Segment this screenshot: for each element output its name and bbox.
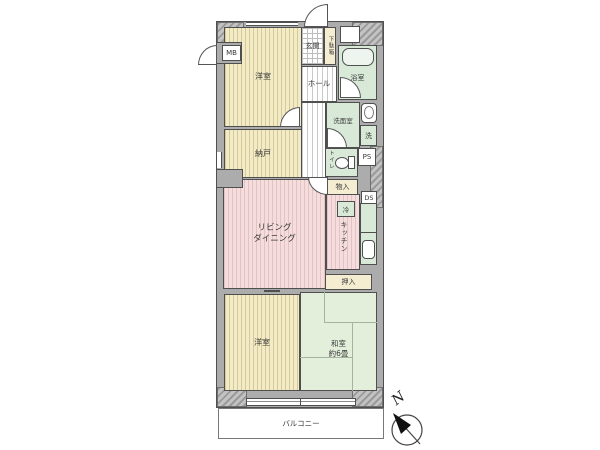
compass: N xyxy=(383,388,445,450)
tatami-line xyxy=(300,357,352,358)
window-tick xyxy=(355,398,356,406)
meter-box-label: MB xyxy=(226,49,237,57)
window-balcony xyxy=(246,398,356,406)
closet-oshiire-label: 押入 xyxy=(342,278,356,287)
room-living-dining-label2: ダイニング xyxy=(253,234,296,245)
tatami-line xyxy=(324,322,377,323)
window-balcony-rail xyxy=(246,401,356,402)
entrance-door-arc xyxy=(304,4,328,27)
toilet-icon xyxy=(335,157,349,169)
storage-monoire: 物入 xyxy=(327,179,358,195)
room-washroom-label: 洗面室 xyxy=(333,117,353,125)
balcony-label: バルコニー xyxy=(282,418,319,429)
room-washitsu-label1: 和室 xyxy=(331,339,346,348)
balcony: バルコニー xyxy=(218,408,384,439)
toilet-tank-icon xyxy=(348,156,355,169)
pipe-space-label: PS xyxy=(363,153,372,161)
compass-n-label: N xyxy=(388,388,409,409)
room-western-top-label: 洋室 xyxy=(255,72,271,82)
room-western-bottom: 洋室 xyxy=(224,294,300,391)
room-western-bottom-label: 洋室 xyxy=(254,338,270,348)
pipe-space: PS xyxy=(358,148,376,166)
wall-niche xyxy=(340,26,360,43)
tatami-line xyxy=(352,322,353,391)
fridge-space: 冷 xyxy=(337,201,355,217)
room-nando-label: 納戸 xyxy=(255,149,271,159)
tatami-line xyxy=(324,292,325,322)
bathtub-icon xyxy=(342,48,374,66)
window-left xyxy=(216,152,222,168)
storage-monoire-label: 物入 xyxy=(336,183,350,192)
shoe-cabinet: 下駄箱 xyxy=(324,27,336,65)
room-kitchen-label: キッチン xyxy=(339,221,349,253)
shoe-cabinet-label: 下駄箱 xyxy=(327,36,334,56)
mb-door-arc xyxy=(198,45,217,65)
kitchen-sink-icon xyxy=(362,240,375,259)
room-living-dining: リビング ダイニング xyxy=(223,179,326,289)
meter-box: MB xyxy=(222,45,241,61)
sliding-door-mark xyxy=(264,290,280,292)
wall-pier-left xyxy=(216,169,243,188)
washer-space-label: 洗 xyxy=(365,131,372,141)
washbasin-bowl-icon xyxy=(364,106,374,119)
room-hall-lower xyxy=(301,102,326,178)
window-tick xyxy=(300,398,301,406)
room-toilet-label: トイレ xyxy=(327,150,335,170)
room-genkan-label: 玄関 xyxy=(306,42,320,51)
fridge-space-label: 冷 xyxy=(343,204,350,214)
kitchen-counter-divider xyxy=(360,232,377,233)
closet-oshiire: 押入 xyxy=(325,274,372,290)
washer-space: 洗 xyxy=(360,125,377,146)
room-hall: ホール xyxy=(301,66,337,102)
floor-plan: 洋室 納戸 玄関 下駄箱 ホール 浴室 洗面室 物入 リビング ダイニング 押入… xyxy=(0,0,600,450)
duct-space-label: DS xyxy=(364,194,373,202)
room-genkan: 玄関 xyxy=(301,27,324,65)
room-living-dining-label1: リビング xyxy=(257,223,291,234)
window-tick xyxy=(246,398,247,406)
window-top xyxy=(246,22,298,26)
room-washitsu: 和室 約6畳 xyxy=(300,292,377,391)
room-hall-label: ホール xyxy=(308,79,331,88)
